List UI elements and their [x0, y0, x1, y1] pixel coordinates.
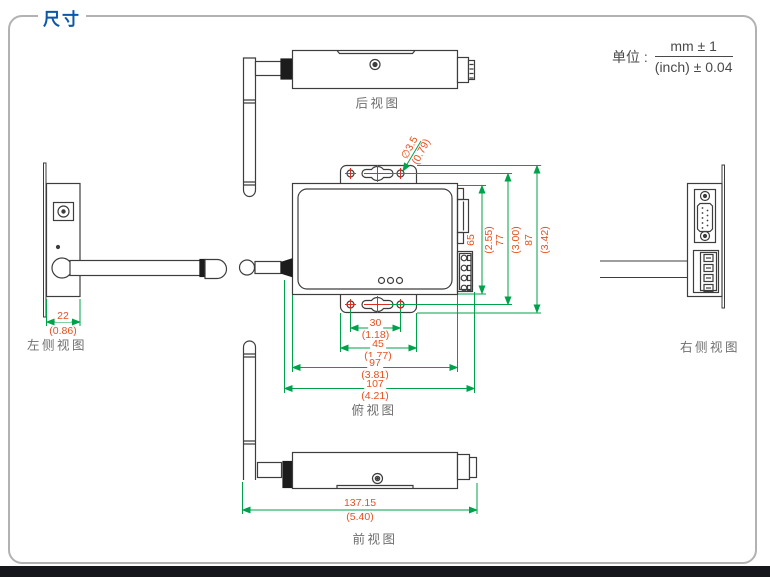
terminal-end	[458, 455, 470, 480]
left-view-label: 左侧视图	[27, 335, 87, 354]
dim-total-length-inch: (5.40)	[346, 511, 373, 523]
led-dot	[57, 246, 60, 249]
dim-side-width-inch: (0.86)	[49, 325, 76, 337]
top-view-label: 俯视图	[351, 400, 396, 419]
antenna-rod	[244, 341, 256, 480]
mounting-flange	[44, 163, 47, 317]
dim-body-width-mm: 97	[367, 357, 383, 369]
terminal-end	[458, 58, 469, 83]
sma-connector	[281, 59, 292, 79]
device-body	[47, 184, 81, 297]
unit-label: 单位 :	[612, 47, 648, 67]
antenna-band	[200, 260, 205, 277]
unit-fraction: mm ± 1 (inch) ± 0.04	[655, 38, 733, 75]
dim-overall-width-inch: (4.21)	[361, 390, 388, 402]
sma-connector	[283, 462, 293, 488]
device-body	[293, 184, 458, 295]
unit-note: 单位 : mm ± 1 (inch) ± 0.04	[612, 38, 733, 75]
antenna-barrel	[258, 463, 282, 478]
antenna-rod	[70, 261, 200, 276]
dim-total-length-mm: 137.15	[342, 497, 378, 509]
dim-slot-span-inch: (3.00)	[510, 226, 522, 253]
right-view-label: 右侧视图	[680, 337, 740, 356]
front-view-label: 前视图	[352, 529, 397, 548]
unit-mm-tolerance: mm ± 1	[655, 38, 733, 57]
dim-side-width-mm: 22	[55, 310, 71, 322]
terminal-block-edge	[458, 252, 473, 292]
antenna-end	[240, 260, 255, 275]
dimension-drawing-page: 尺寸 单位 : mm ± 1 (inch) ± 0.04	[0, 0, 770, 577]
dim-overall-width-mm: 107	[364, 378, 386, 390]
dim-overall-depth-mm: 87	[523, 234, 535, 246]
dim-body-depth-mm: 65	[465, 234, 477, 246]
antenna-barrel	[255, 262, 281, 274]
dimension-drawing-canvas	[0, 0, 770, 577]
dim-slot-span-mm: 77	[494, 234, 506, 246]
dim-tab-width-mm: 45	[370, 338, 386, 350]
unit-inch-tolerance: (inch) ± 0.04	[655, 57, 733, 75]
left-side-view-drawing	[44, 163, 227, 317]
dim-overall-depth-inch: (3.42)	[539, 226, 551, 253]
sma-connector	[281, 259, 292, 277]
rear-view-label: 后视图	[355, 93, 400, 112]
antenna-hinge	[52, 258, 72, 278]
antenna-rod	[244, 58, 256, 197]
right-side-view-drawing	[600, 165, 725, 308]
page-title: 尺寸	[38, 5, 86, 30]
antenna-barrel	[256, 62, 282, 76]
antenna-tip	[205, 260, 227, 279]
top-view-drawing	[240, 166, 473, 313]
dim-hole-span-mm: 30	[368, 317, 384, 329]
antenna-rod-edge	[600, 261, 687, 278]
